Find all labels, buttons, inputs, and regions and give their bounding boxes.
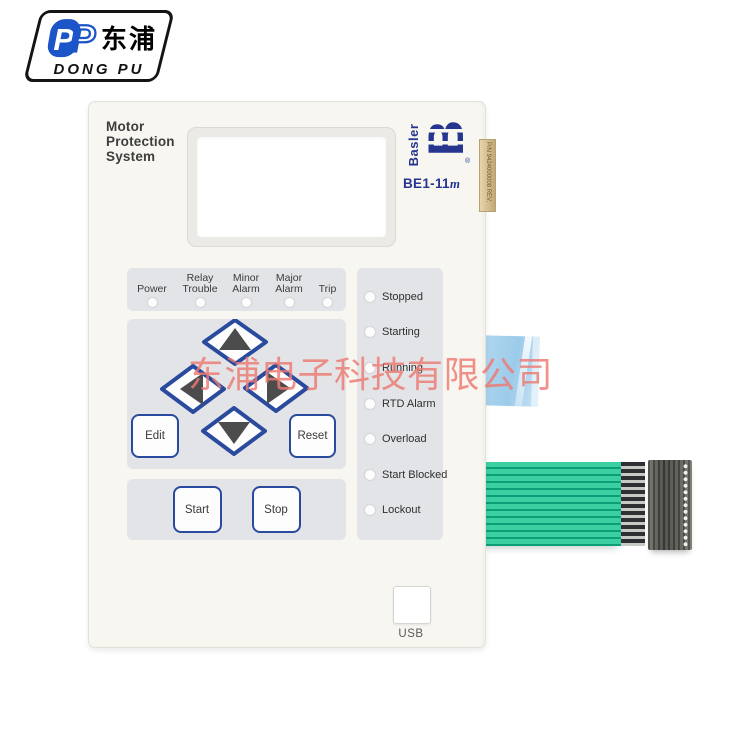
relay-trouble-led-icon xyxy=(196,298,205,307)
brand-name-chinese: 东浦 xyxy=(101,26,157,52)
status-overload: Overload xyxy=(365,421,443,457)
cable-connector xyxy=(648,460,692,550)
usb-label: USB xyxy=(389,628,433,640)
usb-port xyxy=(393,586,431,624)
lcd-display-frame xyxy=(187,127,396,247)
status-start-blocked: Start Blocked xyxy=(365,457,443,493)
basler-logo-block: Basler B ® BE1-11m xyxy=(399,112,481,176)
ribbon-cable xyxy=(479,462,621,546)
double-p-icon: P P xyxy=(41,17,99,61)
panel-title-line2: Protection xyxy=(106,134,175,149)
ribbon-cable-contacts xyxy=(621,462,645,546)
starting-led-icon xyxy=(365,327,375,337)
edit-button[interactable]: Edit xyxy=(131,414,179,458)
stopped-led-icon xyxy=(365,292,375,302)
start-stop-panel: Start Stop xyxy=(127,479,346,540)
major-alarm-led-icon xyxy=(285,298,294,307)
panel-title-line3: System xyxy=(106,149,175,164)
panel-title-line1: Motor xyxy=(106,119,175,134)
start-blocked-led-icon xyxy=(365,470,375,480)
dongpu-logo: P P 东浦 DONG PU xyxy=(23,10,175,82)
lockout-led-icon xyxy=(365,505,375,515)
indicator-minor-alarm: Minor Alarm xyxy=(223,273,269,311)
indicator-trip: Trip xyxy=(309,273,346,311)
model-number-suffix: m xyxy=(450,176,460,191)
status-starting: Starting xyxy=(365,315,443,351)
basler-wordmark: Basler xyxy=(407,116,421,174)
start-button[interactable]: Start xyxy=(173,486,222,533)
stop-button[interactable]: Stop xyxy=(252,486,301,533)
lcd-display-window xyxy=(197,137,386,237)
minor-alarm-led-icon xyxy=(242,298,251,307)
reset-button[interactable]: Reset xyxy=(289,414,336,458)
model-number-main: BE1-11 xyxy=(403,176,450,191)
watermark-text: 东浦电子科技有限公司 xyxy=(188,346,553,398)
svg-text:B: B xyxy=(421,120,469,156)
indicator-major-alarm: Major Alarm xyxy=(269,273,309,311)
indicator-relay-trouble: Relay Trouble xyxy=(177,273,223,311)
model-number: BE1-11m xyxy=(403,176,481,192)
rtd-alarm-led-icon xyxy=(365,399,375,409)
status-led-column: Stopped Starting Running RTD Alarm Overl… xyxy=(357,268,443,540)
indicator-led-row: Power Relay Trouble Minor Alarm Major Al… xyxy=(127,268,346,311)
status-lockout: Lockout xyxy=(365,493,443,529)
indicator-power: Power xyxy=(127,273,177,311)
registered-mark: ® xyxy=(465,158,470,165)
arrow-down-button[interactable] xyxy=(203,408,265,454)
part-number-sticker: P/N 9424000008 REV. xyxy=(479,139,496,212)
panel-title: Motor Protection System xyxy=(106,119,175,164)
overload-led-icon xyxy=(365,434,375,444)
connector-pin-holes xyxy=(682,463,689,547)
brand-name-english: DONG PU xyxy=(53,62,144,77)
basler-b-icon: B xyxy=(421,114,469,162)
power-led-icon xyxy=(148,298,157,307)
trip-led-icon xyxy=(323,298,332,307)
dongpu-logo-inner: P P 东浦 DONG PU xyxy=(35,13,163,79)
svg-text:P: P xyxy=(70,18,96,60)
status-stopped: Stopped xyxy=(365,279,443,315)
